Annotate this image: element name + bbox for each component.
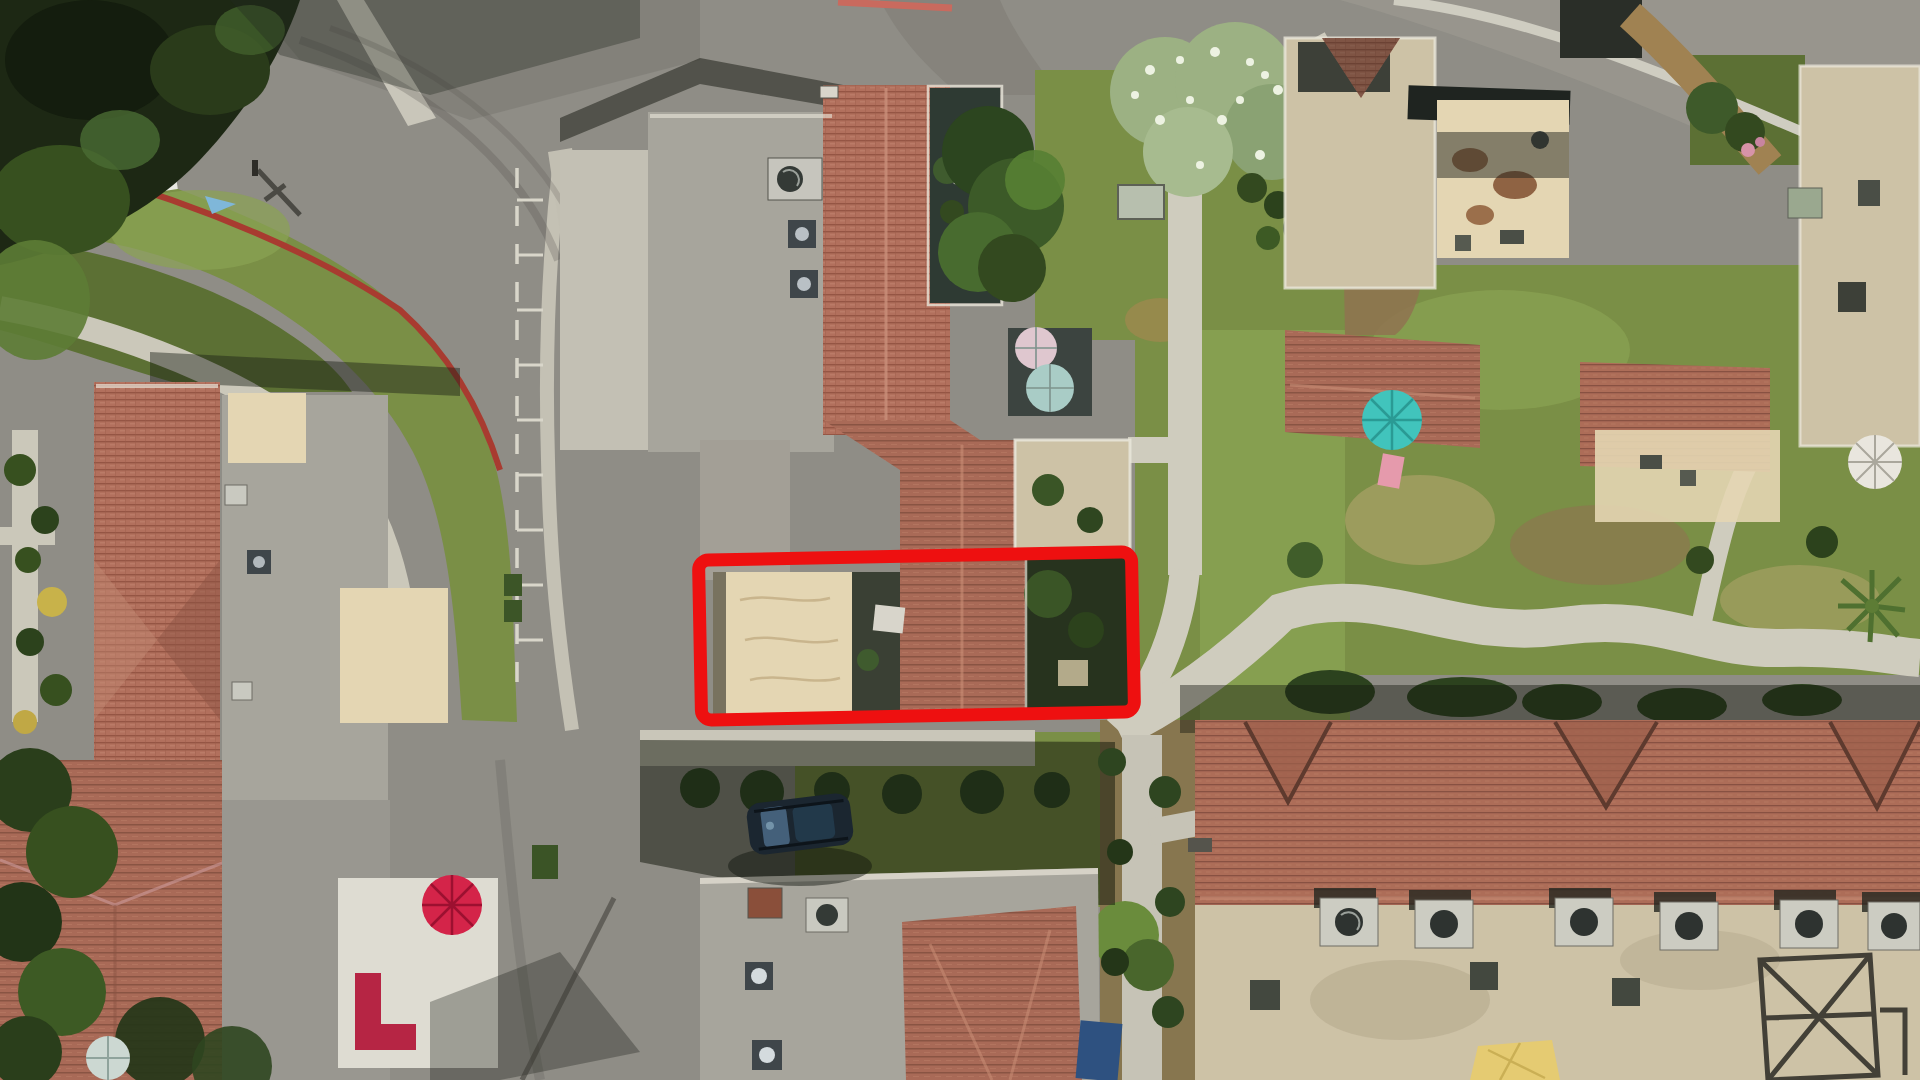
canopy-shadow-core	[5, 0, 175, 120]
skylight	[745, 962, 773, 990]
far-right-building	[1788, 66, 1920, 446]
patio-cover	[873, 605, 906, 634]
garden-bush	[1287, 542, 1323, 578]
roof-hatch	[1838, 282, 1866, 312]
roof-mottling	[1310, 960, 1490, 1040]
ac-unit	[232, 682, 252, 700]
bush	[31, 506, 59, 534]
garden-bush	[1686, 546, 1714, 574]
left-courtyard-upper	[228, 393, 306, 463]
flowering-bush	[37, 587, 67, 617]
ac-unit	[225, 485, 247, 505]
second-building-patio	[1595, 430, 1780, 522]
rear-patio	[1015, 440, 1130, 550]
green-ac-unit	[1788, 188, 1822, 218]
skylight	[247, 550, 271, 574]
ac-fan	[816, 904, 838, 926]
bottom-right-building	[1076, 720, 1920, 1080]
side-patio-concrete	[560, 150, 652, 450]
curbside-hedge	[504, 574, 522, 596]
tree	[26, 806, 118, 898]
subject-courtyard	[713, 572, 905, 715]
rooftop-ac-unit	[768, 158, 822, 200]
pink-flowers	[1741, 143, 1755, 157]
left-courtyard	[340, 588, 448, 723]
bush	[4, 454, 36, 486]
parapet-edge	[650, 114, 832, 118]
aerial-photo	[0, 0, 1920, 1080]
rust-ac-unit	[748, 888, 782, 918]
shaded-hedge-zone	[1024, 556, 1130, 714]
teal-patio-umbrella	[1362, 390, 1422, 450]
tile-hip-roof	[902, 906, 1082, 1080]
white-patio-umbrella	[1848, 435, 1902, 489]
canopy-highlight	[80, 110, 160, 170]
roof-hatch-2	[1858, 180, 1880, 206]
skylight	[752, 1040, 782, 1070]
bush	[40, 674, 72, 706]
courtyard-plant	[857, 649, 879, 671]
car-shadow	[728, 846, 872, 886]
curbside-hedge-3	[532, 845, 558, 879]
blue-tarp-spa	[1076, 1020, 1123, 1080]
garden-bush	[1806, 526, 1838, 558]
roof-vent	[820, 86, 838, 98]
bush	[16, 628, 44, 656]
parapet-edge	[96, 384, 218, 388]
bench	[1188, 838, 1212, 852]
bush	[15, 547, 41, 573]
patio-courtyard	[1437, 100, 1569, 258]
yellow-shade-sail	[1470, 1040, 1560, 1080]
street-sign	[252, 160, 258, 176]
skylight	[790, 270, 818, 298]
red-patio-umbrella	[422, 875, 482, 935]
skylight	[788, 220, 816, 248]
bottom-center-building	[640, 740, 1115, 1080]
aerial-photo-canvas	[0, 0, 1920, 1080]
umbrella-patio	[1008, 327, 1092, 416]
dry-grass-patch	[1345, 475, 1495, 565]
gray-teal-umbrella	[86, 1036, 130, 1080]
bright-tree-bottom-2	[1122, 939, 1174, 991]
flowering-bush	[13, 710, 37, 734]
garden-shed	[1118, 185, 1164, 219]
curbside-hedge-2	[504, 600, 522, 622]
